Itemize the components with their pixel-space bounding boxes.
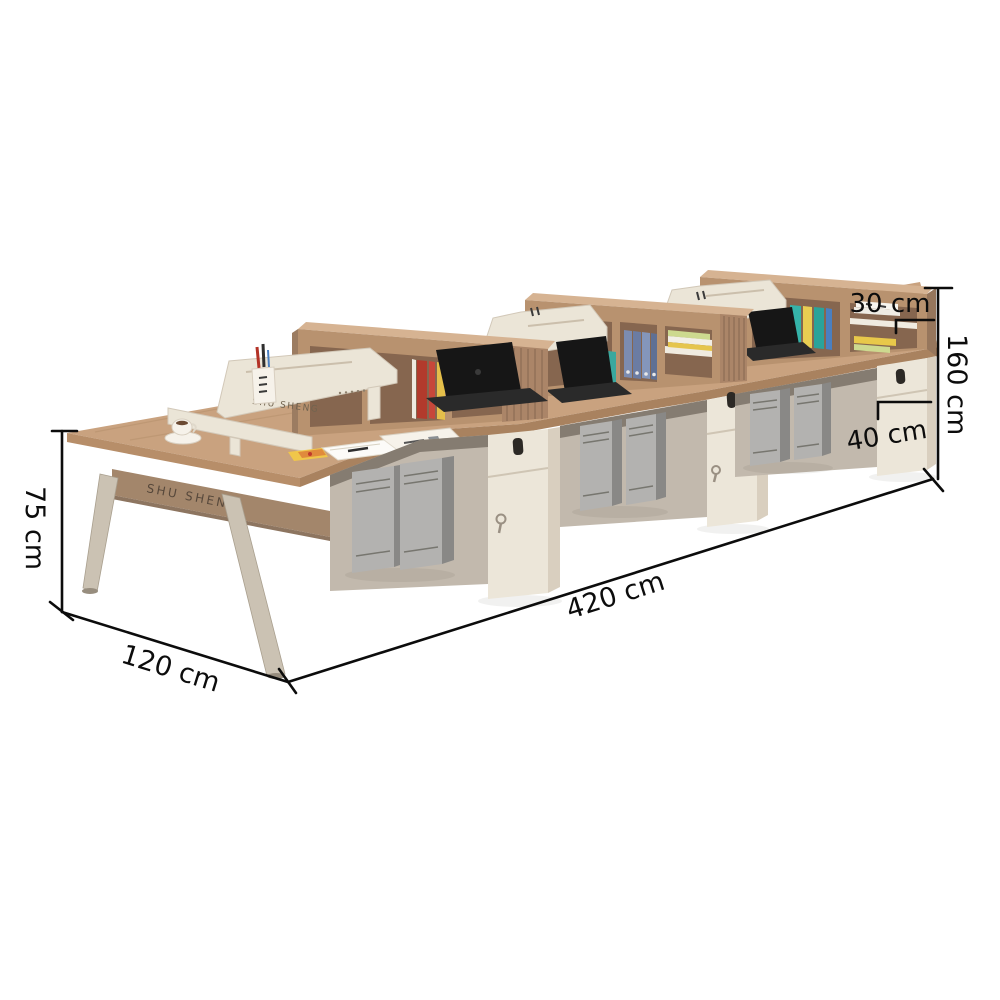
cabinet-side bbox=[927, 356, 936, 470]
computer-tower bbox=[750, 388, 790, 466]
dim-desk-height: 75 cm bbox=[19, 431, 77, 620]
front-leg bbox=[83, 474, 118, 592]
computer-tower bbox=[626, 412, 666, 505]
tower-side bbox=[822, 382, 831, 456]
computer-tower bbox=[352, 464, 406, 573]
dim-label-desk-depth: 120 cm bbox=[118, 639, 224, 699]
tower-side bbox=[612, 419, 622, 506]
cabinet-side bbox=[548, 427, 560, 593]
pen-black bbox=[263, 344, 264, 367]
computer-tower bbox=[794, 382, 831, 460]
laptop-logo bbox=[475, 369, 481, 375]
book bbox=[417, 360, 427, 419]
pedestal-cabinet-1 bbox=[478, 427, 562, 607]
sticky-dot bbox=[308, 452, 312, 456]
book bbox=[803, 306, 812, 348]
dim-label-hutch-shelf: 30 cm bbox=[850, 289, 931, 319]
binder-label bbox=[644, 372, 648, 376]
binder-label bbox=[626, 370, 630, 374]
book bbox=[814, 307, 824, 349]
tower-side bbox=[656, 412, 666, 500]
product-dimension-image: SHU SHENG bbox=[0, 0, 1000, 1000]
binder-label bbox=[635, 371, 639, 375]
book bbox=[826, 308, 832, 350]
drawer-pull bbox=[512, 438, 523, 456]
tower-front bbox=[400, 458, 442, 570]
coffee bbox=[176, 421, 188, 425]
rail-post bbox=[230, 437, 240, 456]
computer-tower bbox=[400, 456, 454, 570]
book bbox=[429, 361, 435, 419]
divider-post bbox=[368, 386, 380, 420]
leg-foot bbox=[82, 588, 98, 594]
drawer-pull bbox=[896, 369, 906, 385]
workstation-scene: SHU SHENG bbox=[0, 0, 1000, 1000]
computer-tower bbox=[580, 419, 622, 511]
pen-red bbox=[257, 347, 259, 368]
tower-side bbox=[780, 388, 790, 462]
binder bbox=[642, 332, 650, 379]
dim-label-desk-height: 75 cm bbox=[19, 486, 50, 570]
binder-label bbox=[652, 373, 656, 377]
tower-side bbox=[442, 456, 454, 564]
dim-label-total-height: 160 cm bbox=[941, 334, 972, 435]
pen-cup-body bbox=[252, 367, 276, 404]
pen-cup bbox=[252, 344, 276, 404]
dim-label-total-length: 420 cm bbox=[562, 566, 668, 626]
pen-blue bbox=[268, 350, 269, 367]
binders-blue bbox=[624, 330, 657, 380]
book bbox=[412, 359, 416, 419]
